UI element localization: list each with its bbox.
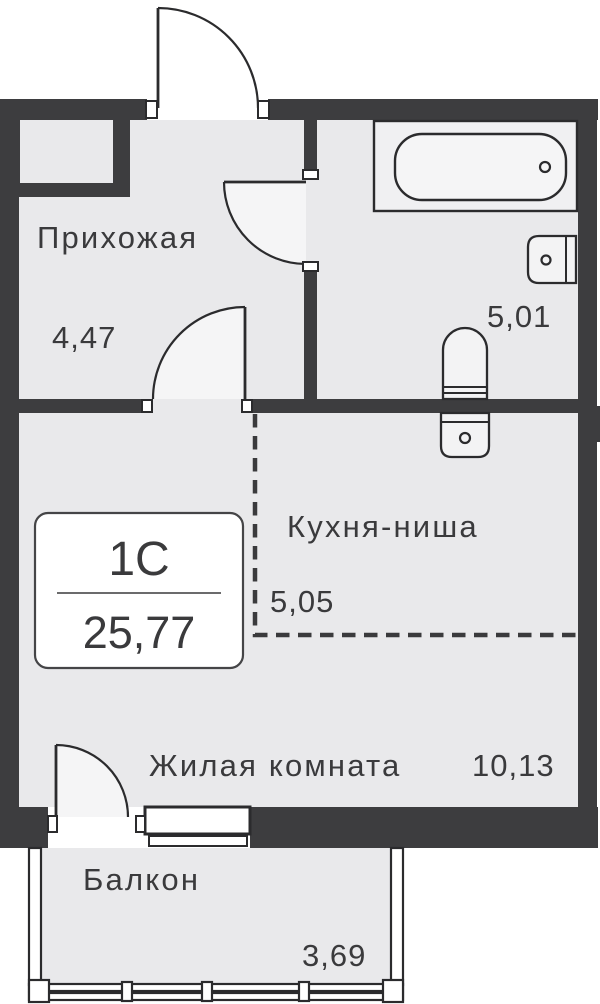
room-area-living: 10,13	[472, 748, 555, 783]
bottom-wall-right	[250, 807, 598, 848]
unit-card: 1С 25,77	[35, 513, 243, 668]
right-wall-stub	[594, 406, 600, 442]
toilet	[443, 328, 487, 399]
hallway-wall-left	[19, 399, 142, 413]
bathroom-sink	[528, 236, 576, 283]
floor-plan-drawing: 1С 25,77 Прихожая 4,47 5,01 Кухня-ниша 5…	[0, 0, 600, 1004]
room-area-hallway: 4,47	[52, 320, 116, 355]
balcony-rail-inner	[29, 993, 403, 1000]
balcony-post-left	[29, 980, 49, 1002]
balcony-wall-right	[391, 848, 403, 985]
bathtub	[374, 121, 577, 211]
bottom-wall-left	[0, 807, 48, 848]
living-room-window	[145, 807, 250, 846]
kitchen-sink	[441, 413, 489, 457]
bathtub-drain	[540, 162, 550, 172]
unit-type-label: 1С	[108, 533, 169, 586]
room-label-living: Жилая комната	[149, 748, 402, 783]
room-label-hallway: Прихожая	[37, 220, 198, 255]
niche-interior	[20, 119, 113, 183]
top-wall-left	[0, 99, 147, 120]
room-label-balcony: Балкон	[83, 862, 200, 897]
room-area-bathroom: 5,01	[487, 299, 551, 334]
balcony-wall-left	[29, 848, 41, 985]
floor-plan-page: 1С 25,77 Прихожая 4,47 5,01 Кухня-ниша 5…	[0, 0, 600, 1004]
top-wall-right	[268, 99, 598, 120]
left-wall	[0, 99, 19, 848]
entrance-door	[158, 8, 258, 108]
right-wall	[578, 99, 597, 848]
entrance-door-arc	[158, 8, 258, 108]
hallway-wall-right	[252, 399, 578, 413]
bathroom-wall-upper	[304, 120, 317, 174]
balcony-post-right	[383, 980, 403, 1002]
balcony-rail-outer	[29, 984, 403, 991]
unit-total-area: 25,77	[83, 607, 196, 658]
balcony-mullion	[122, 982, 132, 1001]
bathroom-wall-lower	[304, 268, 317, 399]
room-label-kitchen: Кухня-ниша	[287, 509, 479, 544]
room-area-balcony: 3,69	[302, 938, 366, 973]
room-area-kitchen: 5,05	[270, 584, 334, 619]
balcony-mullion	[202, 982, 212, 1001]
balcony-mullion	[299, 982, 309, 1001]
